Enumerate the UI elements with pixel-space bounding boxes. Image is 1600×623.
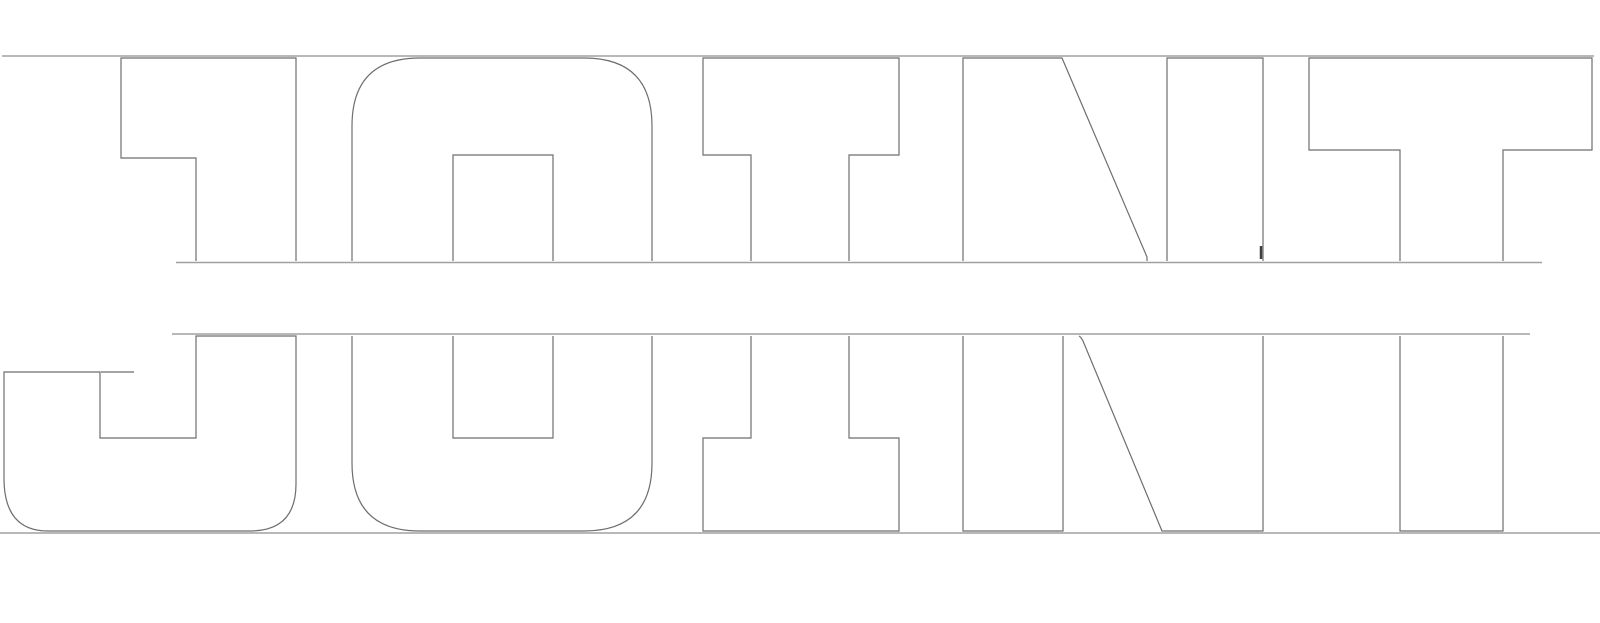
letter-top-N-right-stem [1167, 58, 1263, 261]
letter-bottom-J [4, 336, 296, 531]
joint-wordmark-svg [0, 0, 1600, 623]
letter-bottom-T-stem [1400, 336, 1503, 531]
letter-bottom-N-diagonal-right-stem [1079, 336, 1263, 531]
letter-top-N [963, 58, 1263, 261]
letter-top-O [352, 58, 652, 261]
letter-top-O-counter [453, 155, 553, 261]
letter-bottom-I-outline [703, 336, 899, 531]
letter-top-J-outline [121, 58, 296, 261]
artifacts [101, 246, 1261, 372]
joint-split-wordmark [0, 0, 1600, 623]
letter-bottom-N [963, 336, 1263, 531]
row-top-half [121, 58, 1592, 261]
letter-top-T [1309, 58, 1592, 261]
row-bottom-half [4, 336, 1503, 531]
letter-top-O-outer [352, 58, 652, 261]
letter-top-T-outline [1309, 58, 1592, 261]
letter-bottom-J-hook [4, 336, 296, 531]
letter-top-J [121, 58, 296, 261]
letter-top-I [703, 58, 899, 261]
letter-bottom-O [352, 336, 652, 531]
letter-bottom-T [1400, 336, 1503, 531]
letter-bottom-I [703, 336, 899, 531]
letter-bottom-O-counter [453, 336, 553, 438]
letter-top-N-left-stem-diagonal [963, 58, 1147, 261]
horizontal-rules [0, 56, 1600, 533]
letter-bottom-O-outer [352, 336, 652, 531]
letter-top-I-outline [703, 58, 899, 261]
letter-bottom-N-left-stem [963, 336, 1063, 531]
